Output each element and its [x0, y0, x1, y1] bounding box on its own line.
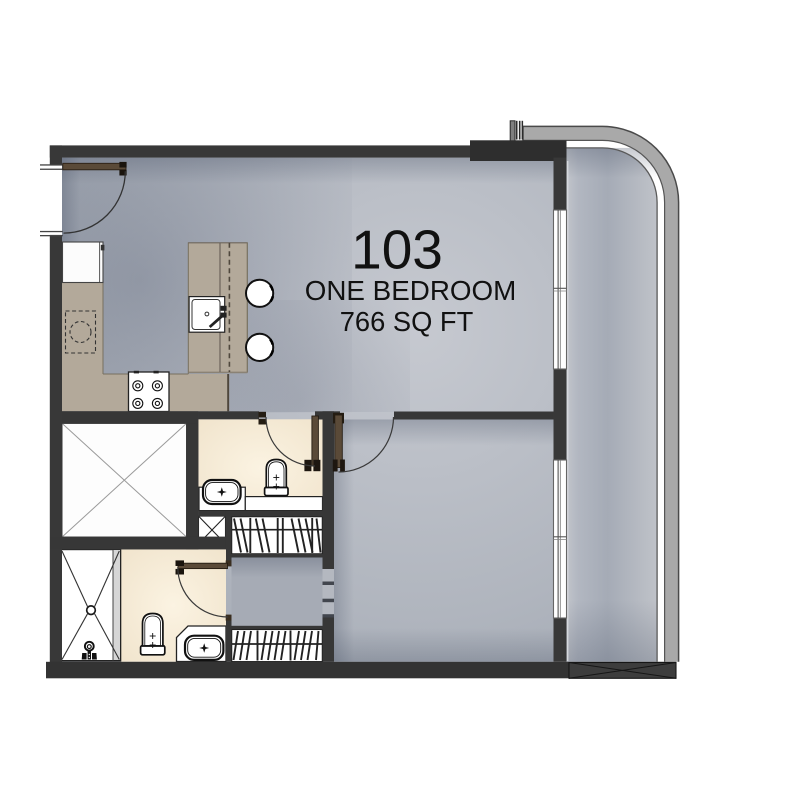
- svg-text:766 SQ FT: 766 SQ FT: [340, 306, 474, 337]
- svg-text:ONE BEDROOM: ONE BEDROOM: [305, 275, 517, 306]
- svg-text:103: 103: [351, 219, 443, 281]
